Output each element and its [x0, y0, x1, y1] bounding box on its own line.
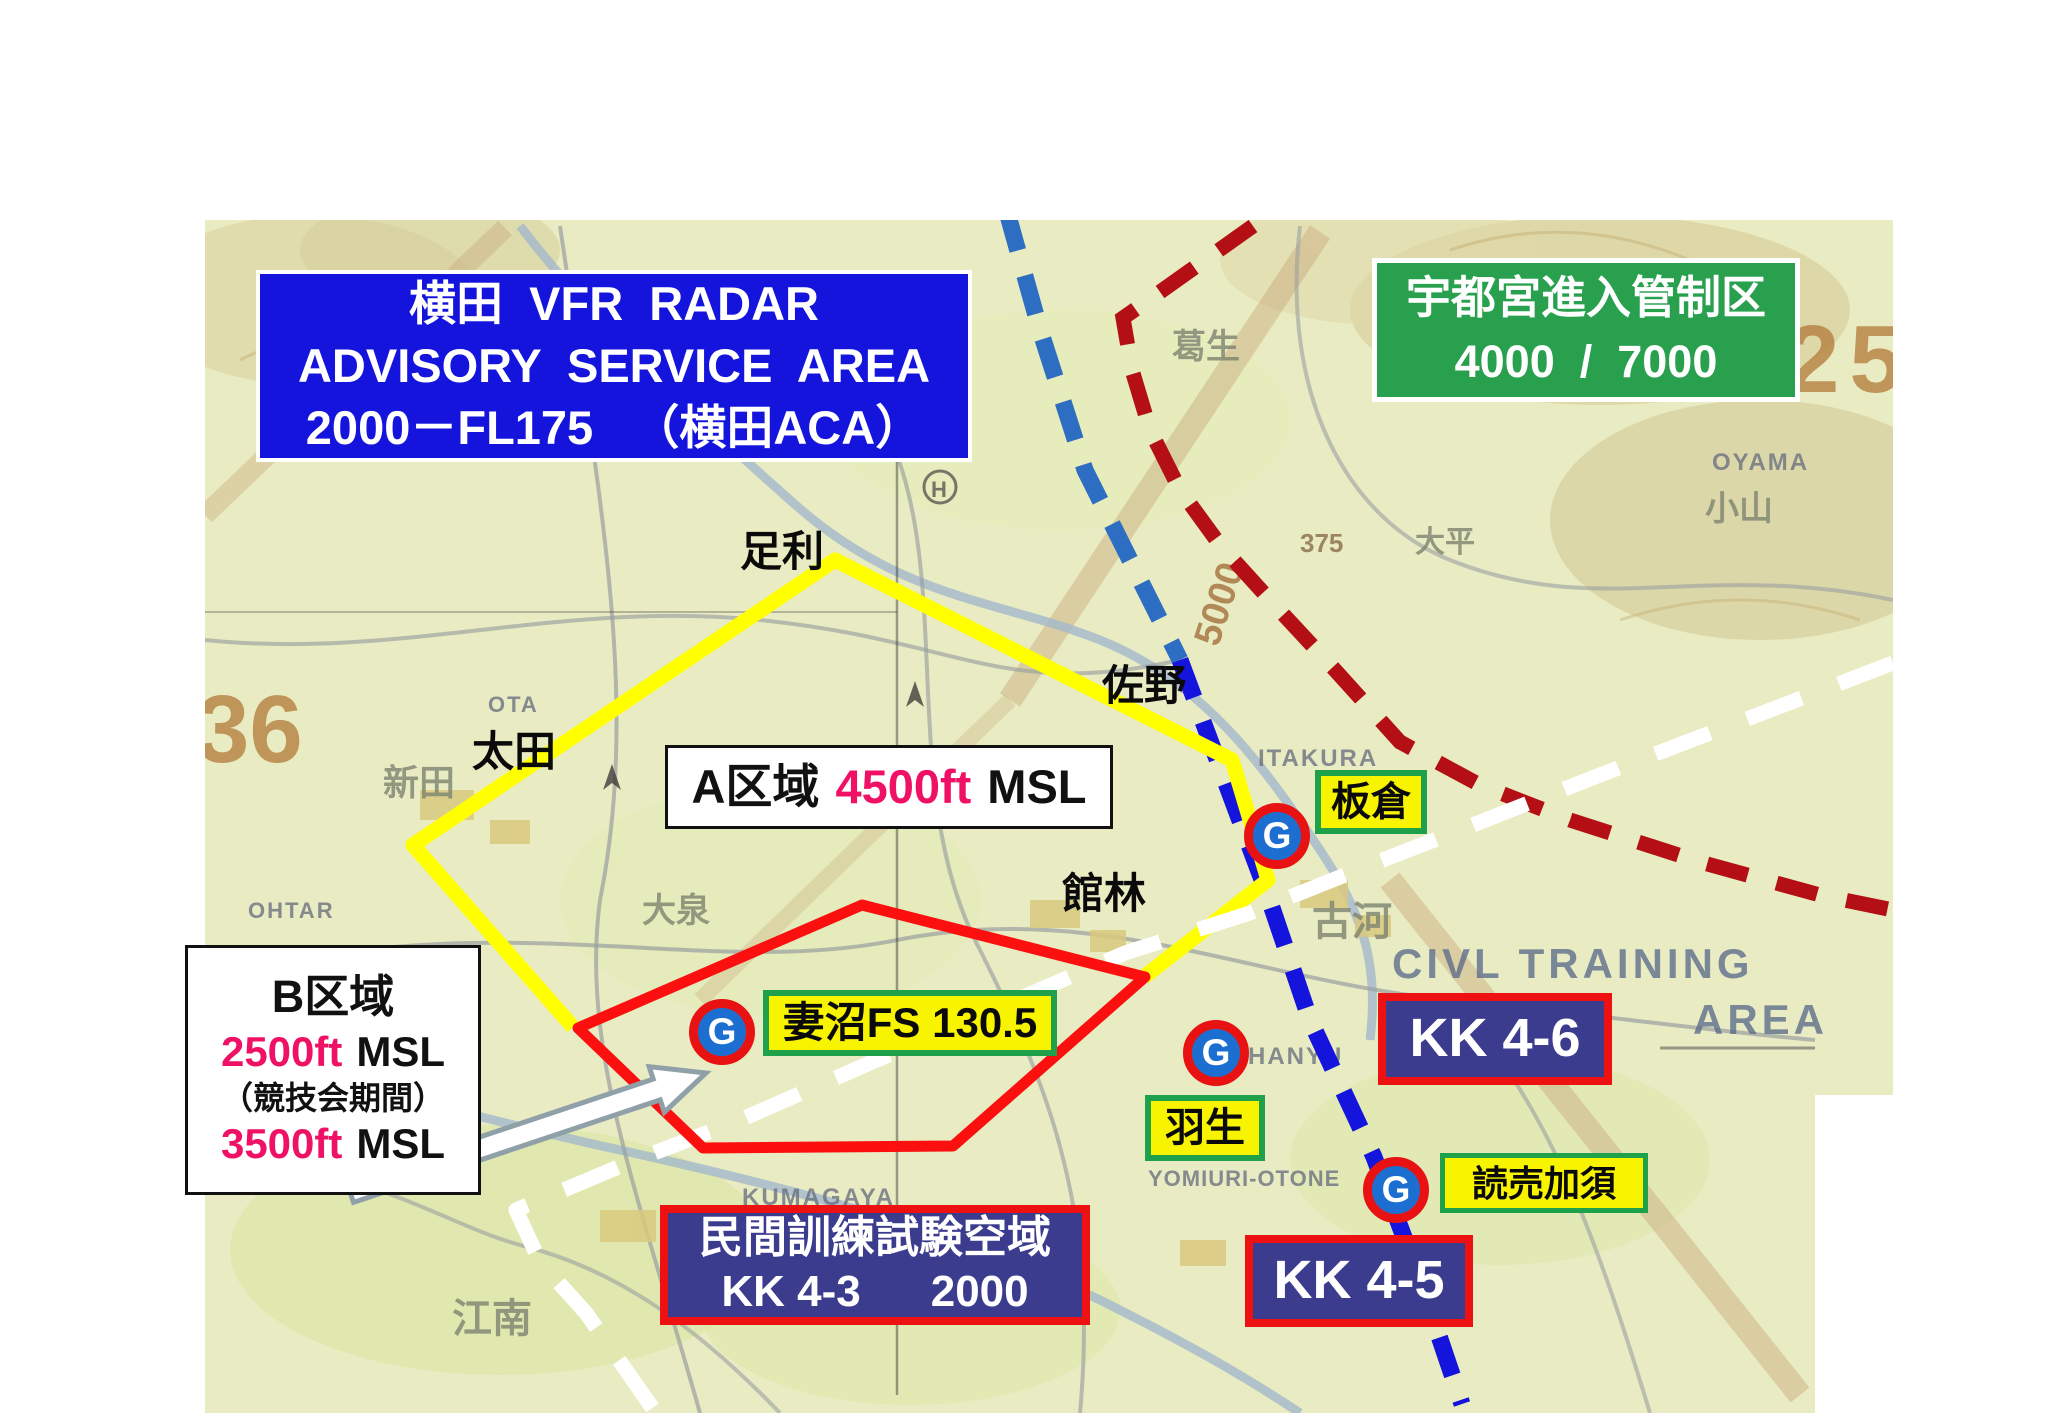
map-text-koga: 古河 [1312, 900, 1392, 944]
map-text-ota-en: OTA [488, 692, 539, 717]
title-line-1: 横田 VFR RADAR [409, 273, 819, 335]
city-label-tatebayashi: 館林 [1062, 860, 1146, 921]
g-letter: G [1202, 1032, 1231, 1074]
map-text-375: 375 [1300, 528, 1343, 558]
glider-marker-hanyu: G [1183, 1020, 1249, 1086]
kk-4-6-box: KK 4-6 [1378, 993, 1612, 1085]
utsunomiya-line-1: 宇都宮進入管制区 [1406, 266, 1766, 330]
map-text-ohira: 大平 [1415, 526, 1475, 559]
area-a-name: A区域 [691, 758, 819, 817]
area-b-alt1: 2500ft [221, 1026, 342, 1079]
svg-text:H: H [931, 477, 947, 502]
map-text-nitta: 新田 [383, 762, 455, 803]
itakura-text: 板倉 [1331, 777, 1411, 827]
map-text-oyama-jp: 小山 [1705, 490, 1773, 528]
map-text-yomiuri-en: YOMIURI-OTONE [1148, 1166, 1340, 1191]
map-text-ohtar: OHTAR [248, 898, 335, 923]
area-a-altitude: 4500ft [835, 758, 971, 817]
map-text-kuzuu: 葛生 [1172, 328, 1240, 366]
map-text-area: AREA [1693, 996, 1828, 1043]
kk-4-3-altitude: 2000 [931, 1265, 1029, 1319]
yomiuri-kazo-text: 読売加須 [1472, 1161, 1616, 1206]
kk-4-5-box: KK 4-5 [1245, 1235, 1473, 1327]
city-label-ota: 太田 [472, 718, 556, 779]
city-label-ashikaga: 足利 [740, 518, 824, 579]
hanyu-text: 羽生 [1165, 1103, 1245, 1153]
map-grid-25: 25 [1786, 306, 1913, 413]
menuma-fs-label: 妻沼FS 130.5 [763, 990, 1057, 1056]
waypoint-label-hanyu: 羽生 [1145, 1095, 1265, 1161]
kk-4-3-code: KK 4-3 [721, 1265, 860, 1319]
area-a-label: A区域 4500ft MSL [665, 745, 1113, 829]
kk-4-3-box: 民間訓練試験空域 KK 4-3 2000 [660, 1205, 1090, 1325]
map-text-oyama-en: OYAMA [1712, 449, 1809, 476]
map-text-civl-training: CIVL TRAINING [1392, 940, 1754, 987]
utsunomiya-line-2: 4000 / 7000 [1455, 330, 1718, 394]
map-text-oizumi: 大泉 [642, 892, 710, 930]
kk-4-6-text: KK 4-6 [1409, 1005, 1580, 1073]
title-line-2: ADVISORY SERVICE AREA [298, 335, 930, 397]
utsunomiya-approach-box: 宇都宮進入管制区 4000 / 7000 [1372, 258, 1800, 402]
area-b-alt2: 3500ft [221, 1118, 342, 1171]
g-letter: G [708, 1011, 737, 1053]
slide: ASHIKAGA OTA OHTAR ITAKURA HANYU YOMIURI… [0, 0, 2048, 1418]
map-text-itakura-en: ITAKURA [1258, 745, 1378, 772]
kk-4-5-text: KK 4-5 [1273, 1247, 1444, 1315]
area-b-name: B区域 [272, 969, 395, 1025]
g-letter: G [1263, 815, 1292, 857]
map-text-konan: 江南 [452, 1297, 532, 1341]
g-letter: G [1382, 1169, 1411, 1211]
menuma-fs-text: 妻沼FS 130.5 [783, 997, 1037, 1050]
area-b-unit2: MSL [356, 1118, 445, 1171]
title-box: 横田 VFR RADAR ADVISORY SERVICE AREA 2000－… [256, 270, 972, 462]
glider-marker-itakura: G [1244, 803, 1310, 869]
city-label-sano: 佐野 [1102, 652, 1186, 713]
area-a-unit: MSL [987, 758, 1086, 817]
kk-4-3-title: 民間訓練試験空域 [699, 1211, 1051, 1265]
title-line-3: 2000－FL175 （横田ACA） [306, 397, 922, 459]
map-grid-36: 36 [196, 676, 303, 783]
area-b-box: B区域 2500ft MSL （競技会期間） 3500ft MSL [185, 945, 481, 1195]
waypoint-label-yomiuri-kazo: 読売加須 [1440, 1153, 1648, 1213]
glider-marker-yomiuri-kazo: G [1363, 1157, 1429, 1223]
glider-marker-menuma: G [689, 999, 755, 1065]
area-b-note: （競技会期間） [221, 1078, 445, 1118]
area-b-unit1: MSL [356, 1026, 445, 1079]
waypoint-label-itakura: 板倉 [1315, 770, 1427, 834]
